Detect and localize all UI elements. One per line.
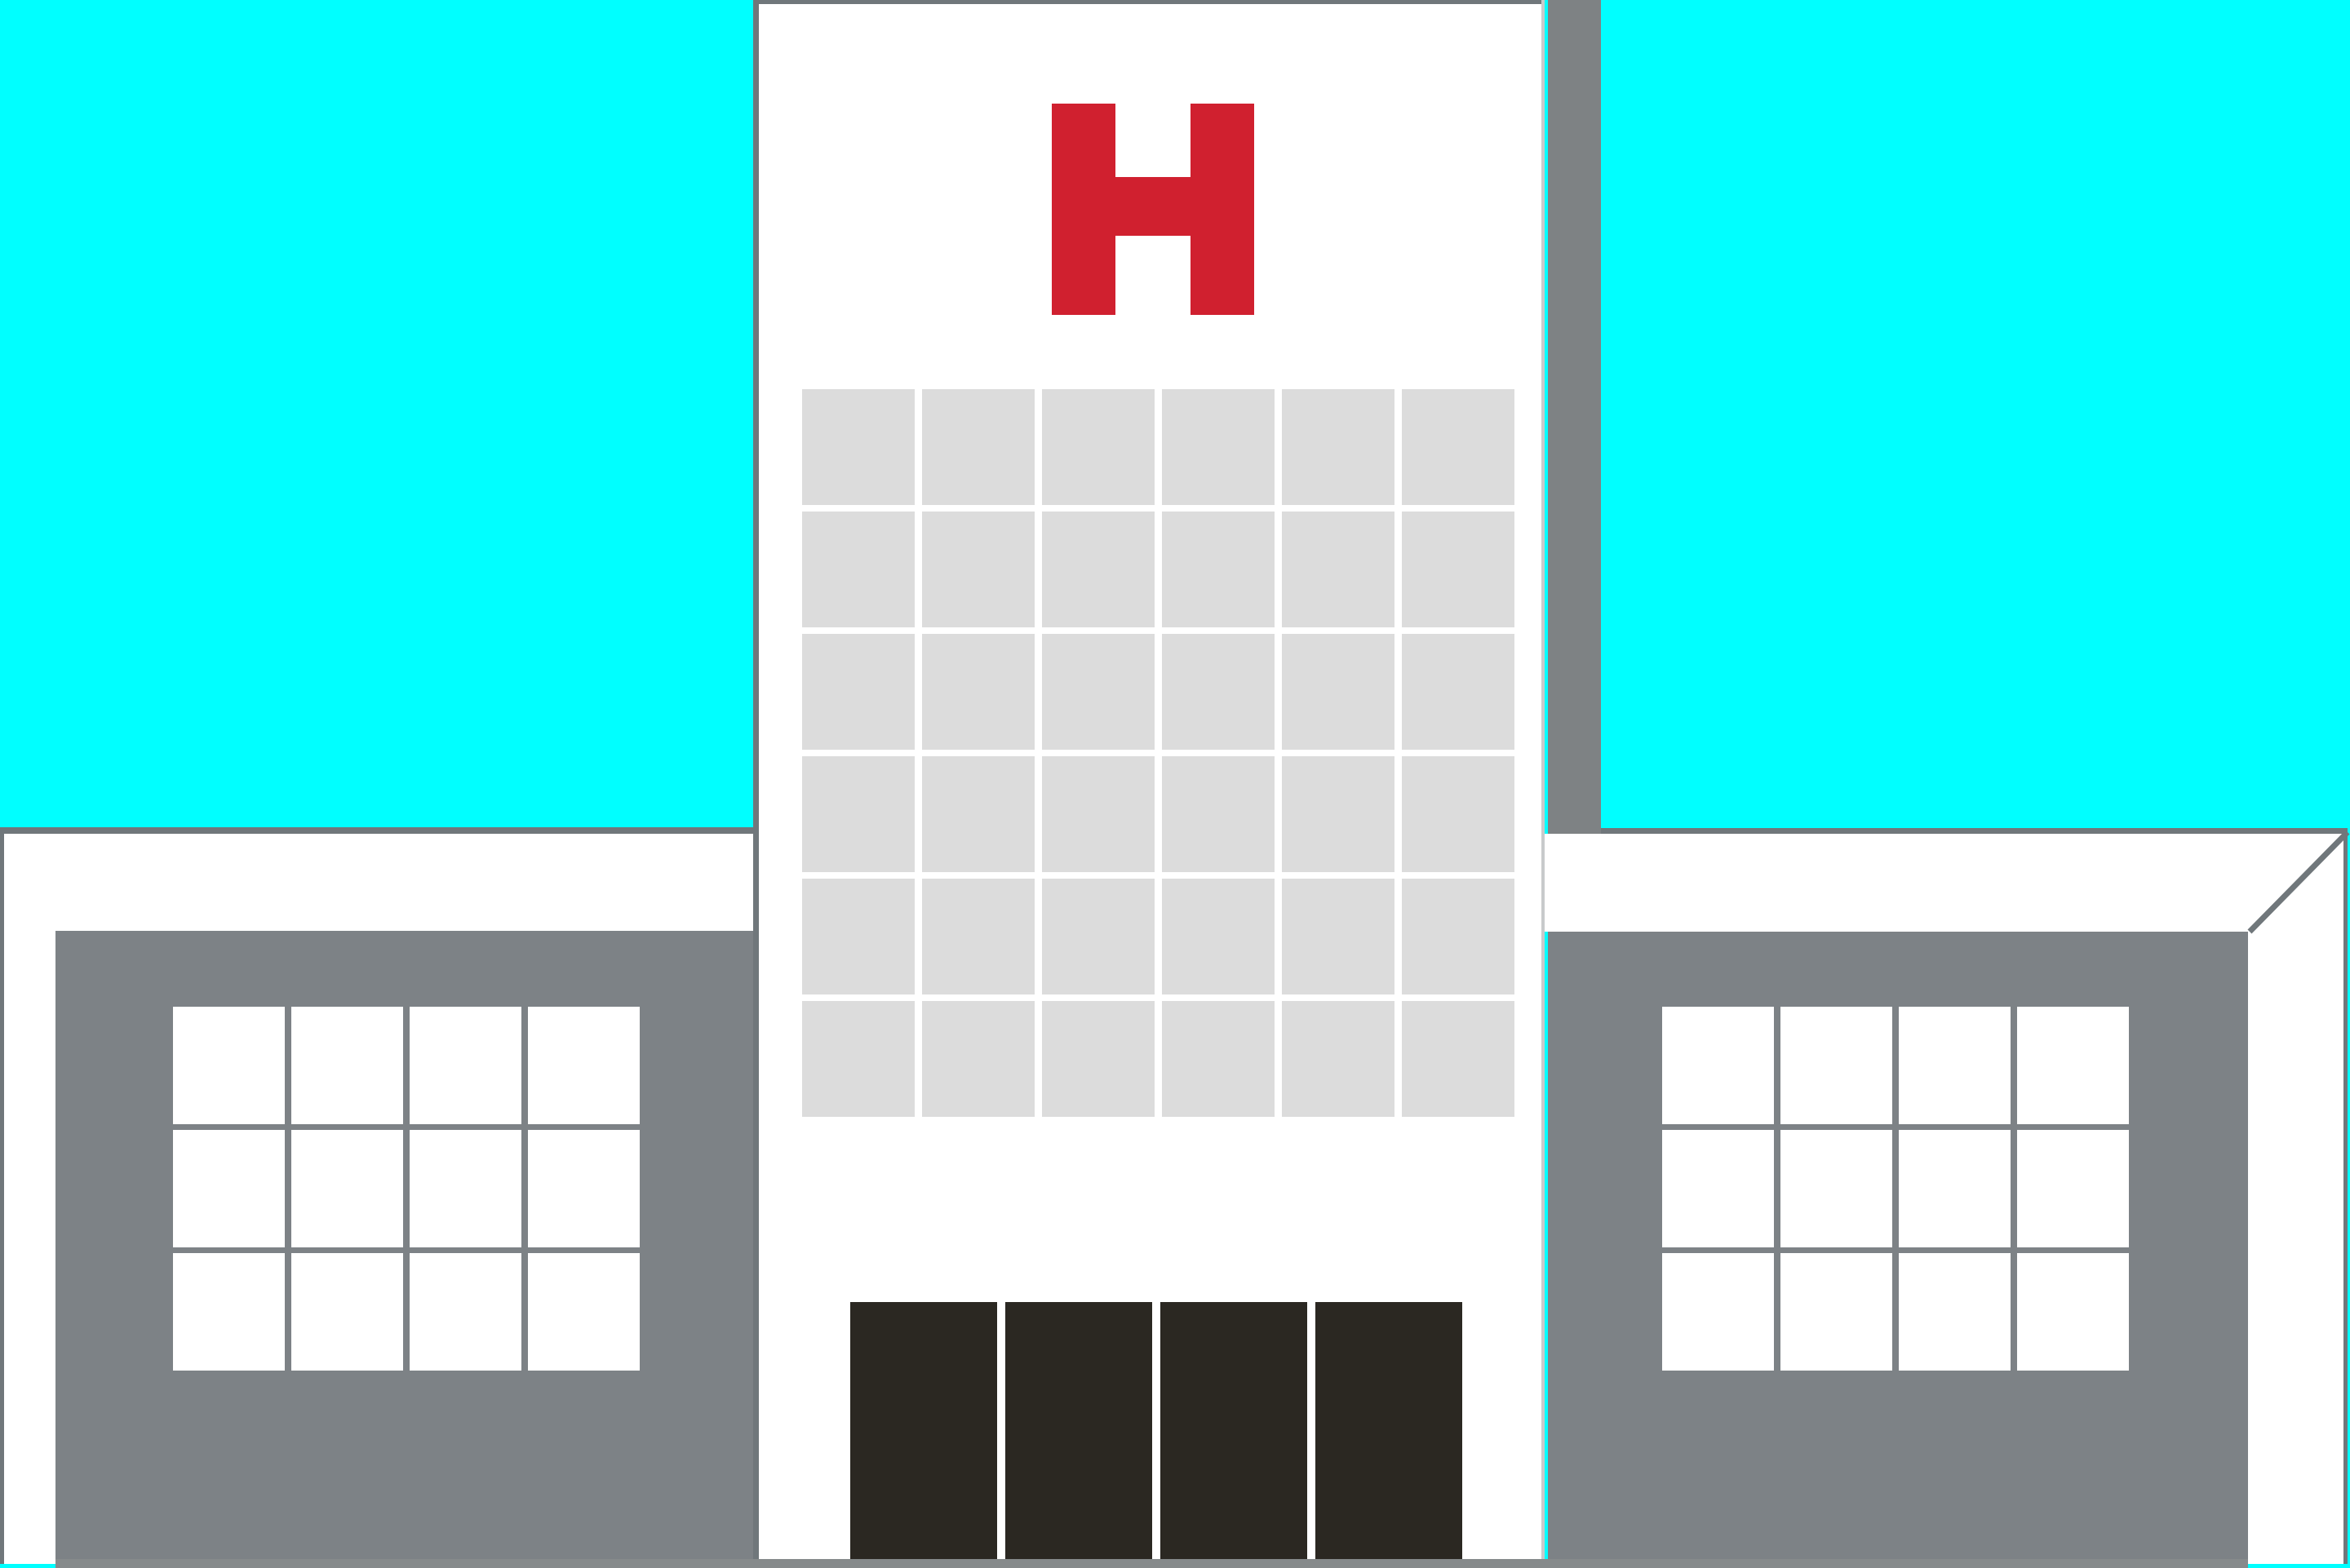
tower-window <box>1162 1001 1275 1117</box>
h-sign-crossbar <box>1115 177 1191 236</box>
tower-window <box>1162 634 1275 750</box>
tower-window <box>1042 512 1155 627</box>
window-pane <box>1662 1253 1774 1371</box>
tower-window <box>802 879 915 994</box>
window-pane <box>1662 1130 1774 1247</box>
window-pane <box>410 1253 521 1371</box>
door <box>1315 1302 1462 1559</box>
tower-window <box>922 634 1035 750</box>
window-pane <box>1899 1007 2011 1124</box>
window-pane <box>1899 1130 2011 1247</box>
left-roof-edge-line <box>0 827 756 834</box>
tower-window <box>802 634 915 750</box>
tower-window <box>922 1001 1035 1117</box>
door <box>1005 1302 1152 1559</box>
window-pane <box>173 1253 285 1371</box>
tower-right-highlight <box>1541 0 1545 1559</box>
right-roof-band <box>1545 834 2343 932</box>
tower-window <box>1282 389 1394 505</box>
central-tower: H <box>753 0 1545 1559</box>
tower-window <box>1402 634 1514 750</box>
left-roof-band <box>4 834 756 931</box>
tower-window <box>1402 879 1514 994</box>
tower-window <box>1042 1001 1155 1117</box>
tower-window <box>1162 512 1275 627</box>
tower-window <box>922 879 1035 994</box>
window-pane <box>2017 1253 2129 1371</box>
tower-window <box>802 512 915 627</box>
tower-window <box>802 1001 915 1117</box>
tower-window <box>1162 389 1275 505</box>
window-pane <box>1899 1253 2011 1371</box>
window-pane <box>528 1007 640 1124</box>
tower-top-outline <box>753 0 1545 4</box>
window-pane <box>1780 1007 1892 1124</box>
window-pane <box>1780 1130 1892 1247</box>
window-pane <box>528 1253 640 1371</box>
tower-left-outline <box>753 0 759 1559</box>
tower-window <box>1282 1001 1394 1117</box>
window-pane <box>528 1130 640 1247</box>
tower-window <box>922 512 1035 627</box>
hospital-illustration: H <box>0 0 2350 1568</box>
tower-window <box>1162 756 1275 872</box>
tower-window <box>802 756 915 872</box>
tower-window <box>922 389 1035 505</box>
tower-window <box>1282 879 1394 994</box>
window-pane <box>291 1253 403 1371</box>
window-pane <box>173 1130 285 1247</box>
tower-window <box>1282 512 1394 627</box>
window-pane <box>1780 1253 1892 1371</box>
window-pane <box>2017 1007 2129 1124</box>
tower-window <box>1402 512 1514 627</box>
tower-shadow-strip <box>1548 0 1601 835</box>
right-roof-corner-diagonal <box>2240 822 2350 937</box>
door <box>850 1302 997 1559</box>
tower-window <box>1042 879 1155 994</box>
tower-window <box>802 389 915 505</box>
hospital-h-sign: H <box>1052 104 1254 315</box>
left-side-wall <box>4 931 55 1564</box>
tower-window <box>1402 756 1514 872</box>
tower-window <box>1402 389 1514 505</box>
window-pane <box>291 1007 403 1124</box>
tower-window <box>922 756 1035 872</box>
tower-window <box>1282 756 1394 872</box>
window-pane <box>1662 1007 1774 1124</box>
window-pane <box>173 1007 285 1124</box>
tower-window <box>1042 389 1155 505</box>
door <box>1160 1302 1307 1559</box>
right-side-wall <box>2248 932 2343 1564</box>
right-wall-outline <box>2343 832 2348 1564</box>
right-wing-facade <box>1548 932 2248 1559</box>
window-pane <box>410 1130 521 1247</box>
tower-window <box>1162 879 1275 994</box>
ground-strip <box>55 1559 2248 1568</box>
tower-window <box>1402 1001 1514 1117</box>
h-sign-right-bar <box>1191 104 1254 315</box>
tower-window <box>1282 634 1394 750</box>
window-pane <box>410 1007 521 1124</box>
left-wing-facade <box>55 931 756 1559</box>
right-roof-edge-line <box>1601 828 2348 834</box>
tower-window <box>1042 634 1155 750</box>
window-pane <box>291 1130 403 1247</box>
tower-window <box>1042 756 1155 872</box>
h-sign-left-bar <box>1052 104 1115 315</box>
window-pane <box>2017 1130 2129 1247</box>
